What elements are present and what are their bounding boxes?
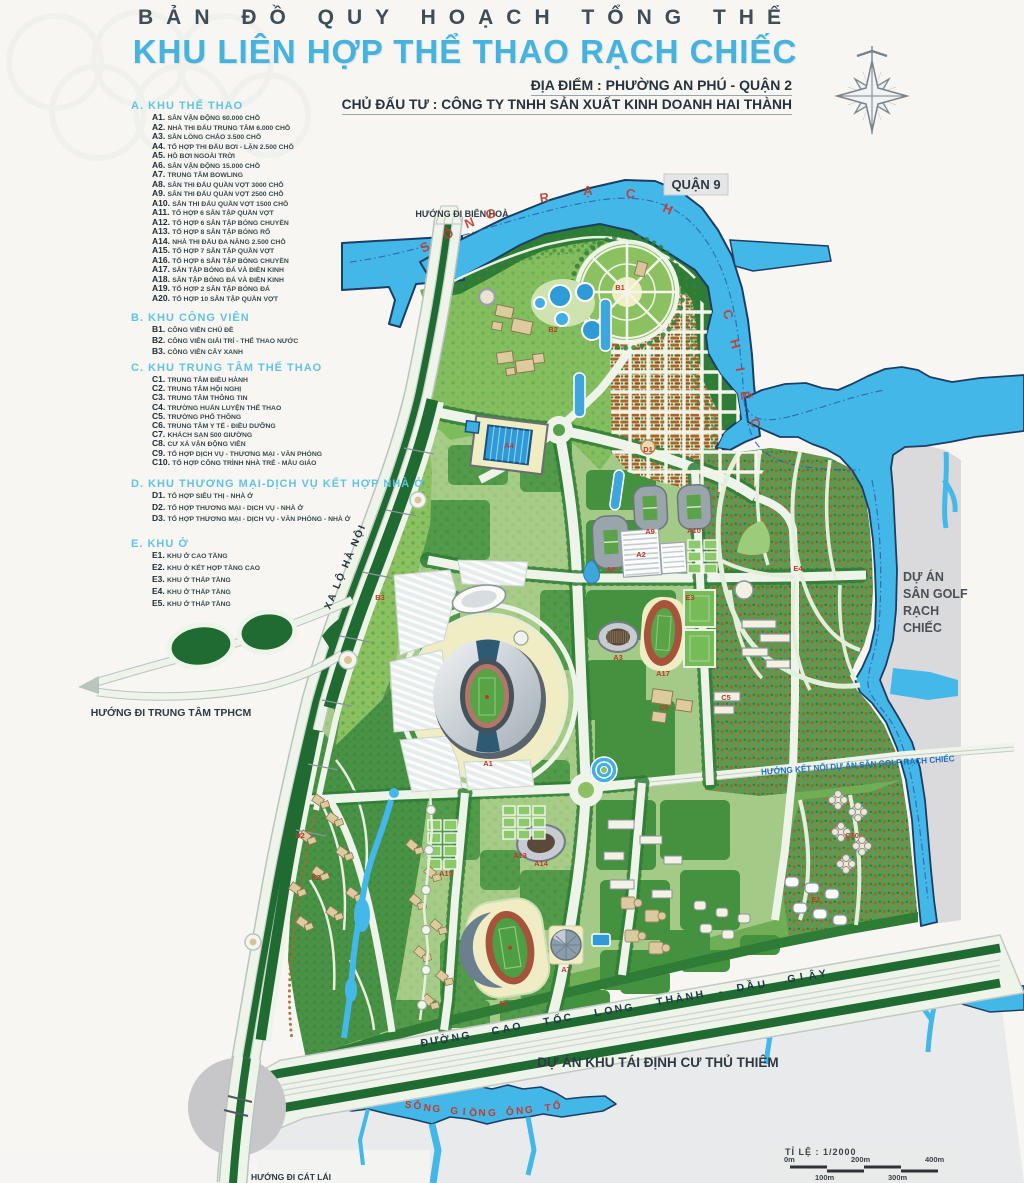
svg-text:G: G [488,1108,496,1119]
svg-text:B1: B1 [615,283,625,292]
svg-text:N: N [516,1106,524,1117]
svg-text:HƯỚNG ĐI CÁT LÁI: HƯỚNG ĐI CÁT LÁI [251,1171,331,1182]
svg-text:T: T [544,1103,551,1115]
svg-text:C5: C5 [721,693,731,702]
svg-text:G: G [484,205,498,222]
svg-text:D1: D1 [643,445,653,454]
svg-text:100m: 100m [815,1173,835,1182]
svg-text:A10: A10 [687,526,701,535]
svg-text:E4: E4 [793,564,803,573]
svg-text:A3: A3 [613,653,623,662]
svg-text:E2: E2 [311,873,320,882]
svg-text:HƯỚNG ĐI TRUNG TÂM TPHCM: HƯỚNG ĐI TRUNG TÂM TPHCM [91,706,252,719]
svg-text:G: G [525,1105,534,1117]
svg-text:Ô: Ô [413,1099,422,1113]
svg-text:400m: 400m [925,1155,945,1164]
svg-text:A7: A7 [561,965,571,974]
svg-text:DỰ ÁN KHU TÁI ĐỊNH CƯ THỦ THIÊ: DỰ ÁN KHU TÁI ĐỊNH CƯ THỦ THIÊM [537,1055,778,1070]
svg-text:C6: C6 [659,703,669,712]
svg-text:DỰ ÁN: DỰ ÁN [903,569,944,584]
svg-text:A6: A6 [498,999,508,1008]
svg-text:0m: 0m [784,1155,795,1164]
svg-text:A14: A14 [534,859,549,868]
svg-text:Ồ: Ồ [469,1106,477,1119]
svg-text:A1: A1 [483,759,493,768]
svg-text:A9: A9 [645,527,655,536]
svg-text:N: N [478,1108,485,1119]
svg-text:A4: A4 [504,441,514,450]
svg-text:200m: 200m [851,1155,871,1164]
svg-text:R: R [538,189,550,205]
svg-text:A17: A17 [656,669,670,678]
svg-text:RẠCH: RẠCH [903,604,939,618]
svg-text:CHIẾC: CHIẾC [903,620,942,635]
svg-text:D2: D2 [295,831,305,840]
svg-text:E3: E3 [685,593,694,602]
svg-text:A2: A2 [636,550,646,559]
svg-text:SÂN GOLF: SÂN GOLF [903,586,968,601]
svg-text:Ạ: Ạ [583,183,594,198]
svg-text:Ô: Ô [506,1105,515,1118]
svg-text:B2: B2 [548,325,558,334]
svg-text:G: G [450,1106,459,1118]
svg-text:N: N [423,1103,431,1115]
svg-text:A15: A15 [439,869,453,878]
svg-text:QUẬN 9: QUẬN 9 [671,177,720,192]
svg-text:TỈ LỆ : 1/2000: TỈ LỆ : 1/2000 [785,1146,857,1157]
svg-text:G: G [432,1104,441,1116]
svg-text:E1: E1 [811,895,820,904]
svg-text:A13: A13 [513,851,527,860]
svg-text:B3: B3 [375,593,385,602]
svg-text:A8: A8 [606,565,616,574]
svg-text:300m: 300m [888,1173,908,1182]
svg-text:C10: C10 [845,831,859,840]
